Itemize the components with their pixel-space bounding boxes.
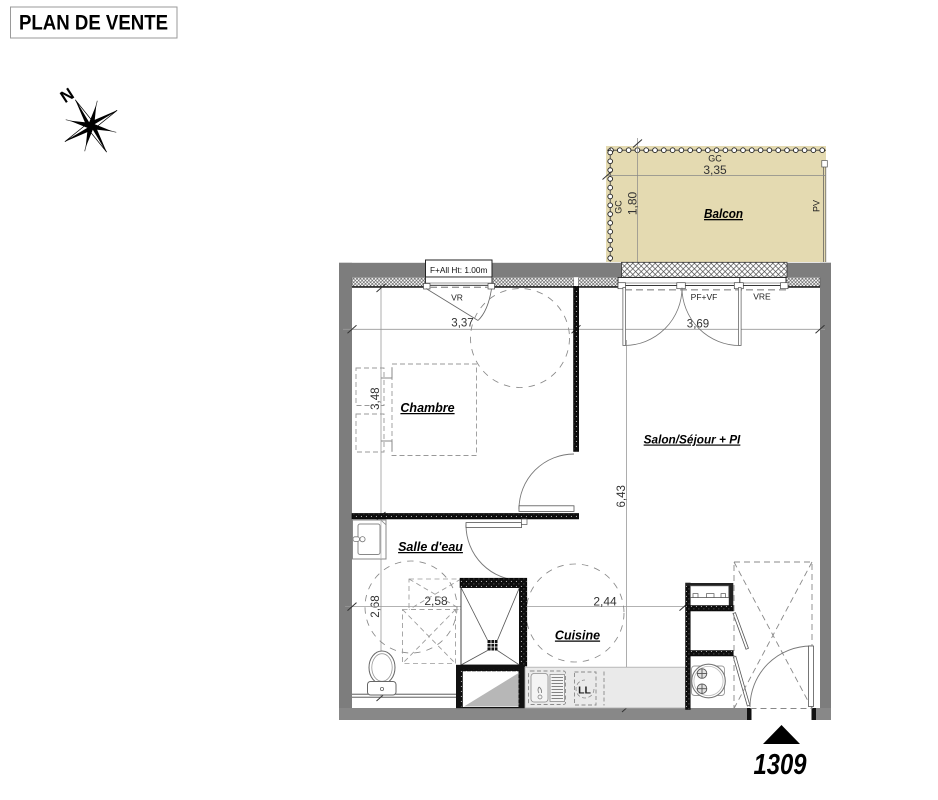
svg-text:F+All Ht: 1.00m: F+All Ht: 1.00m: [430, 265, 487, 275]
svg-text:3,69: 3,69: [687, 319, 709, 331]
svg-text:Cuisine: Cuisine: [555, 629, 600, 643]
svg-text:Salle d'eau: Salle d'eau: [398, 540, 463, 554]
svg-text:GC: GC: [614, 200, 624, 214]
svg-text:2,44: 2,44: [593, 595, 617, 609]
svg-text:Salon/Séjour + PI: Salon/Séjour + PI: [644, 433, 741, 447]
svg-text:2,58: 2,58: [424, 594, 448, 608]
svg-text:3,48: 3,48: [370, 388, 382, 410]
svg-text:3,35: 3,35: [703, 163, 727, 177]
svg-text:Chambre: Chambre: [400, 401, 454, 415]
svg-text:1309: 1309: [754, 749, 807, 781]
svg-text:VR: VR: [451, 293, 463, 303]
svg-text:PF+VF: PF+VF: [691, 292, 718, 302]
svg-text:LL: LL: [578, 685, 591, 697]
svg-text:3,37: 3,37: [451, 318, 473, 330]
svg-text:1,80: 1,80: [626, 191, 640, 215]
svg-text:GC: GC: [708, 154, 722, 164]
svg-text:Balcon: Balcon: [704, 206, 743, 221]
svg-text:PLAN DE VENTE: PLAN DE VENTE: [19, 11, 168, 35]
svg-text:VRE: VRE: [753, 292, 771, 302]
svg-text:6,43: 6,43: [616, 485, 628, 507]
svg-text:PV: PV: [812, 200, 822, 212]
